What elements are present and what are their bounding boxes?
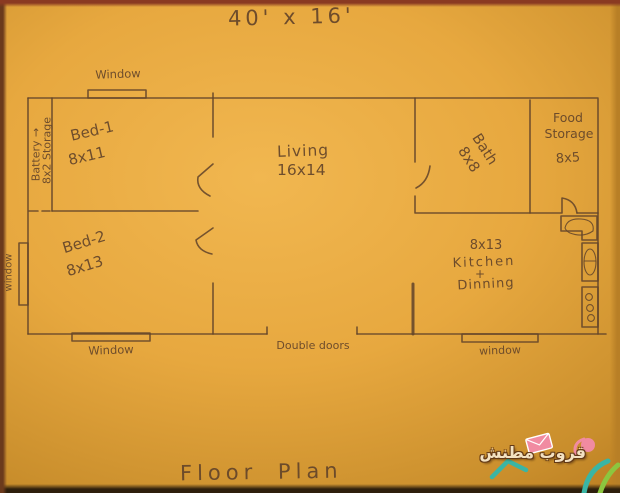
door-arc-bed1: [198, 164, 213, 196]
stove-burner: [588, 315, 595, 322]
kitchen-counter-blob: [565, 219, 593, 235]
watermark-text: قروب مطنش: [486, 443, 586, 462]
window-bottom-left-label: Window: [72, 342, 150, 359]
floor-plan-photo: 40' x 16' Window Battery → 8x2 Storage B…: [0, 0, 620, 493]
living-name: Living: [277, 141, 330, 161]
door-arc-food-storage: [562, 198, 577, 213]
food-storage-name-2: Storage: [538, 126, 600, 141]
window-bottom-right-label: window: [462, 343, 538, 359]
door-arc-bath: [416, 166, 430, 188]
window-top-rect: [88, 90, 146, 98]
battery-storage-label-2: 8x2 Storage: [41, 95, 54, 207]
door-arc-bed2: [196, 228, 213, 254]
window-left-rect: [19, 243, 28, 305]
sink-basin: [584, 249, 596, 275]
stove-burner: [587, 305, 594, 312]
window-left-label: window: [4, 242, 15, 304]
plan-title: 40' x 16': [228, 3, 355, 30]
plan-caption: Floor Plan: [180, 459, 343, 486]
window-bottom-right-rect: [462, 334, 538, 342]
kitchen-size: 8x13: [458, 238, 514, 253]
window-top-label: Window: [86, 66, 150, 82]
double-doors-label: Double doors: [266, 339, 360, 352]
living-size: 16x14: [277, 161, 326, 179]
stove-burner: [586, 294, 593, 301]
kitchen-counter: [561, 216, 597, 240]
double-doors-ticks: [267, 327, 357, 334]
watermark-swoosh-underline: [492, 461, 526, 477]
watermark-swoosh-leg: [600, 465, 618, 493]
food-storage-name-1: Food: [542, 110, 594, 125]
